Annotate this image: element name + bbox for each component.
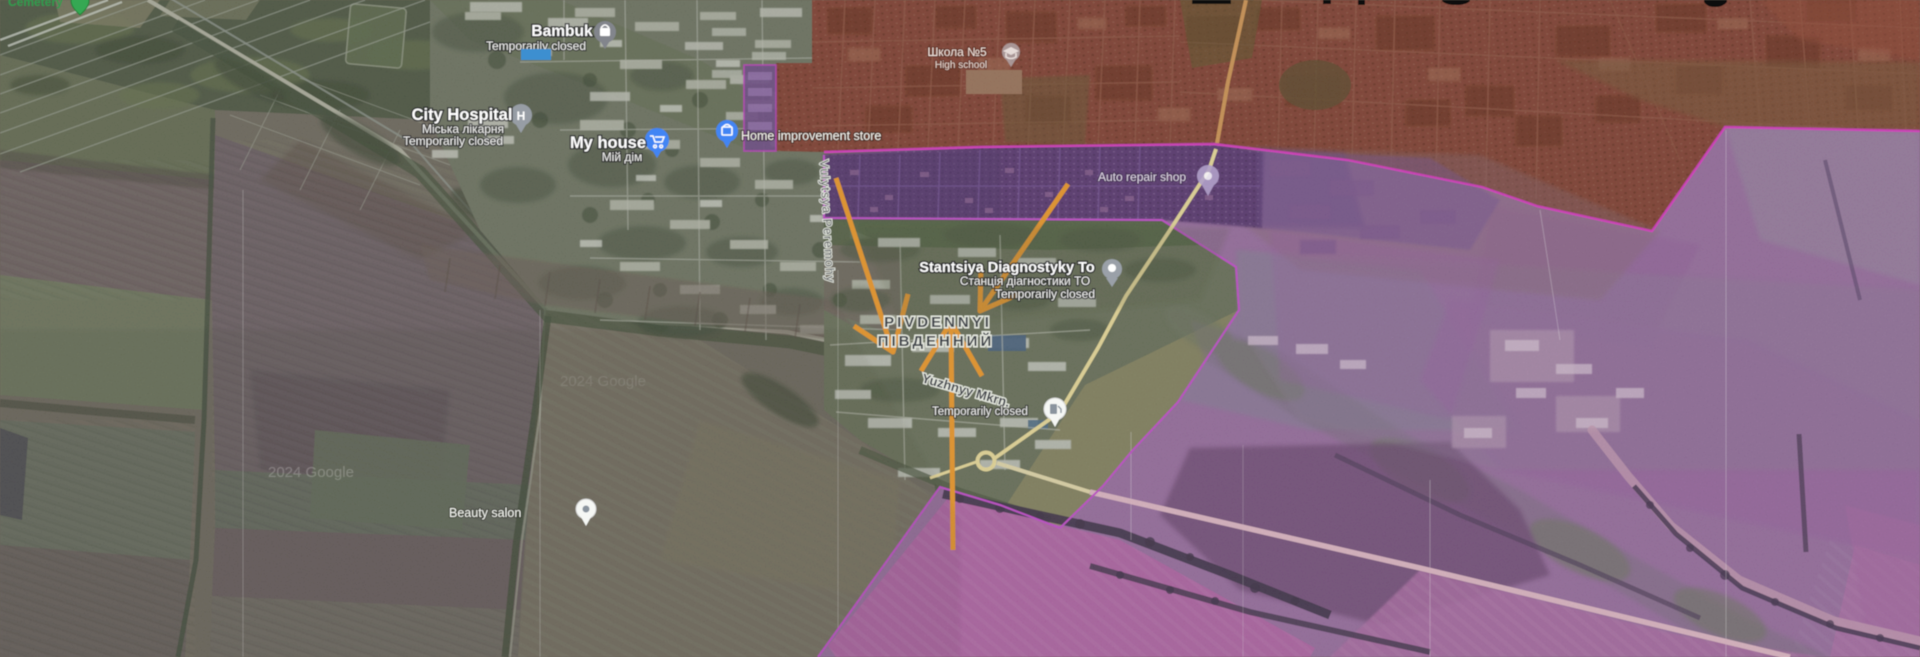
svg-text:Мій дім: Мій дім — [602, 150, 643, 164]
svg-text:Школа №5: Школа №5 — [927, 45, 987, 59]
svg-text:Beauty salon: Beauty salon — [449, 506, 521, 520]
svg-text:Home improvement store: Home improvement store — [741, 129, 881, 143]
svg-text:ПІВДЕННИЙ: ПІВДЕННИЙ — [878, 332, 995, 350]
svg-text:Станція діагностики ТО: Станція діагностики ТО — [960, 274, 1090, 288]
svg-text:Cemetery: Cemetery — [8, 0, 63, 9]
svg-text:Temporarily closed: Temporarily closed — [403, 134, 503, 148]
svg-text:Temporarily closed: Temporarily closed — [932, 406, 1028, 418]
svg-text:2024 Google: 2024 Google — [560, 373, 646, 390]
svg-text:2024 Google: 2024 Google — [268, 464, 354, 481]
svg-text:High school: High school — [935, 60, 987, 71]
svg-text:H: H — [517, 109, 526, 123]
svg-text:Bambuk: Bambuk — [531, 23, 593, 40]
svg-text:PIVDENNYI: PIVDENNYI — [884, 314, 992, 331]
svg-text:Auto repair shop: Auto repair shop — [1098, 170, 1186, 184]
svg-text:Temporarily closed: Temporarily closed — [995, 287, 1095, 301]
